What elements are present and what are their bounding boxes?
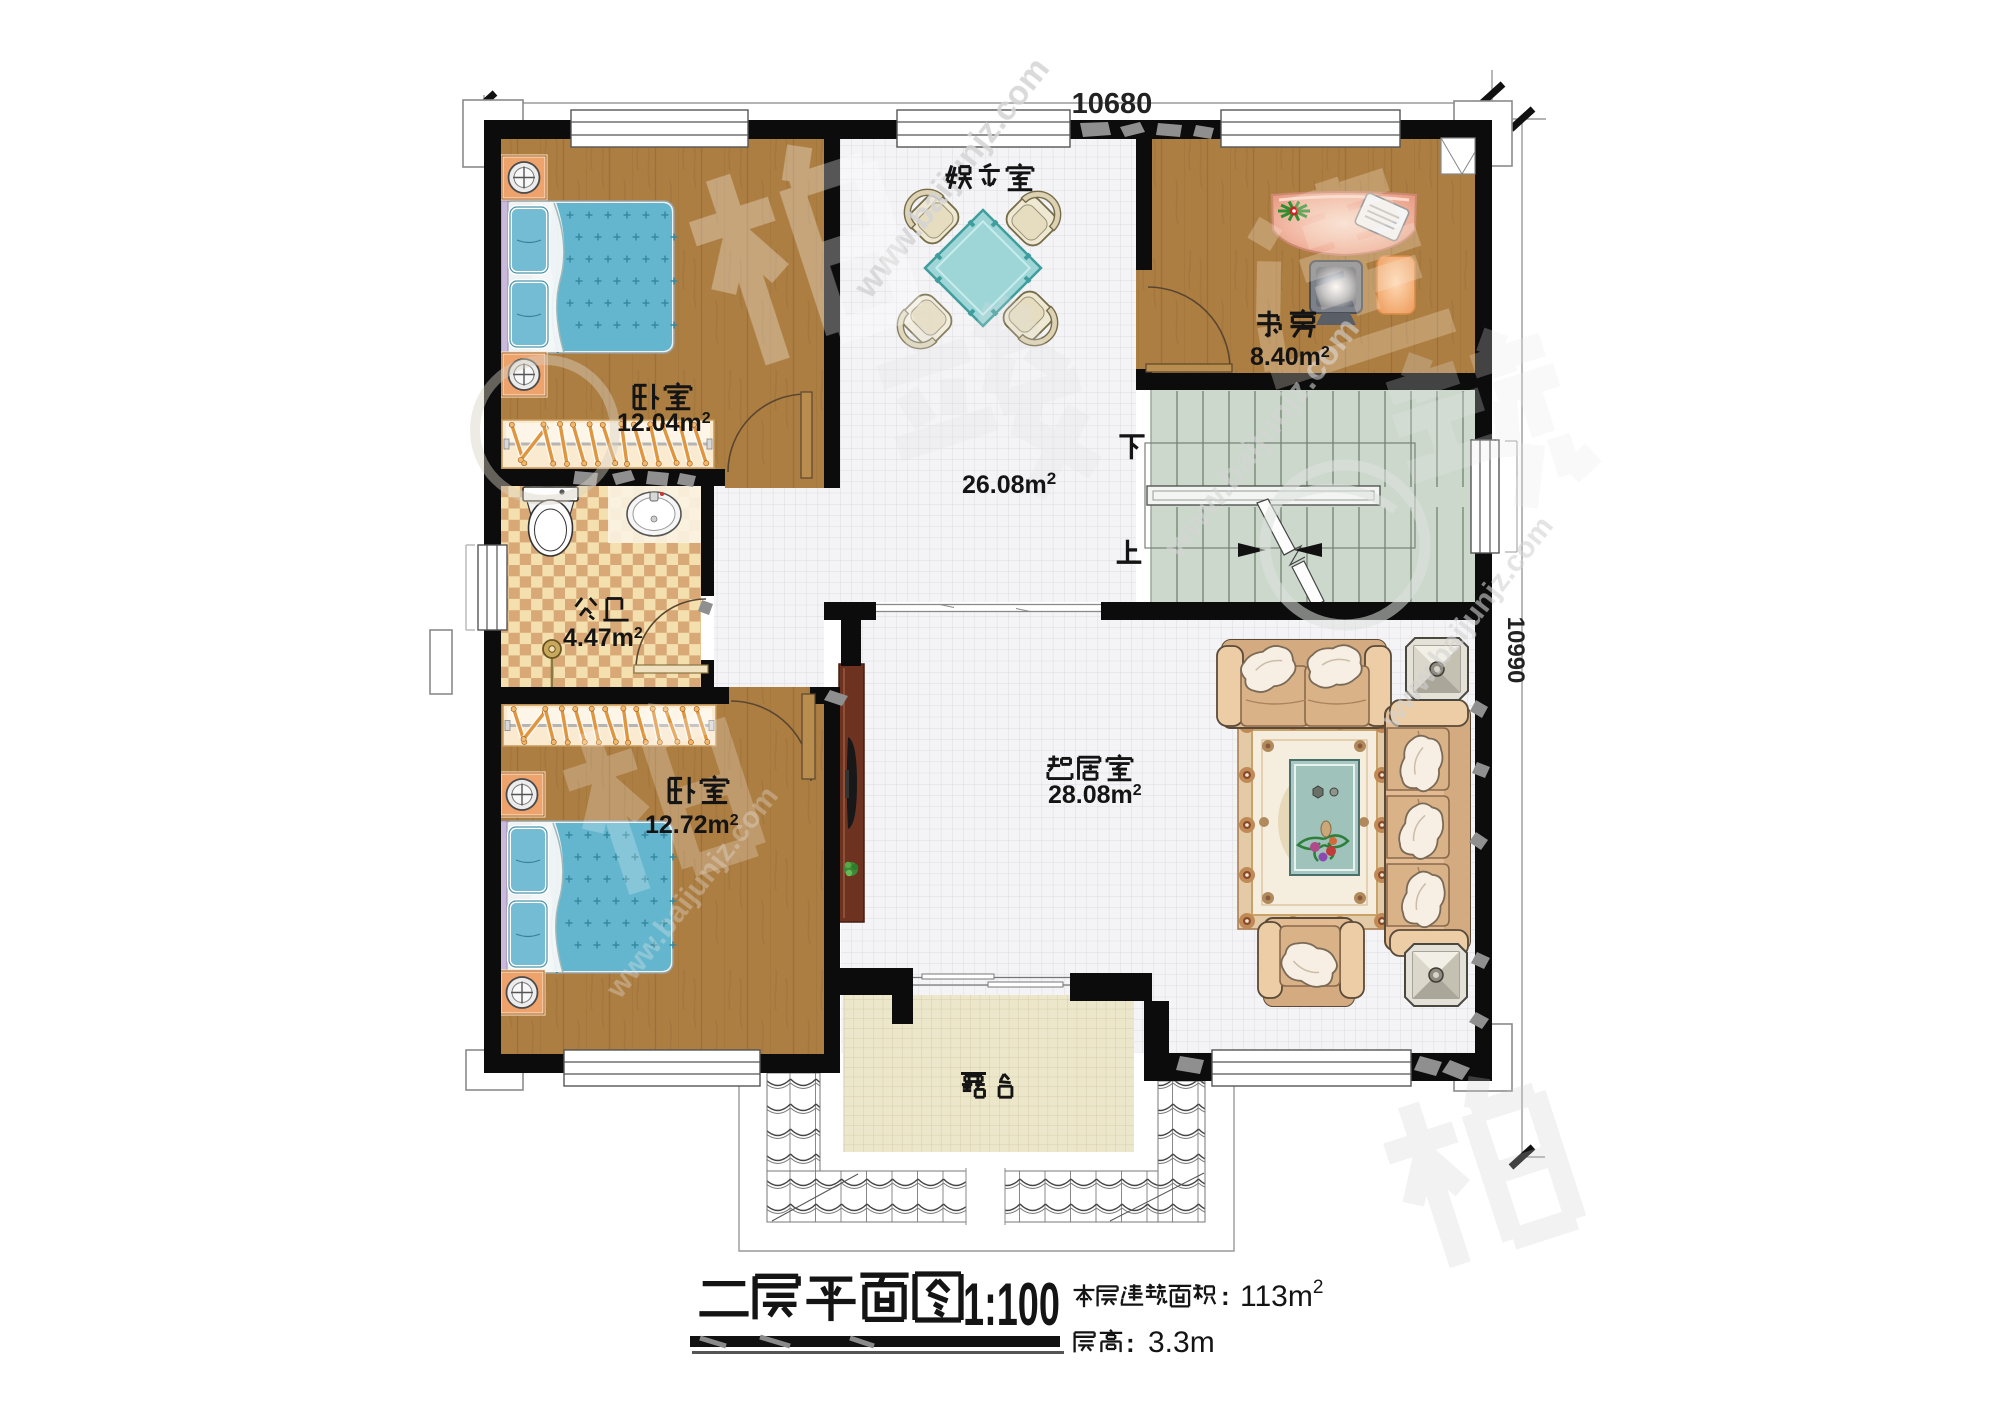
svg-text:10990: 10990 [1502, 617, 1529, 684]
svg-text::: : [1126, 1328, 1135, 1358]
svg-text:10680: 10680 [1072, 88, 1153, 120]
svg-text:12.04m2: 12.04m2 [617, 409, 711, 437]
svg-text::: : [1221, 1281, 1230, 1311]
svg-text:8.40m2: 8.40m2 [1250, 343, 1330, 371]
svg-text:26.08m2: 26.08m2 [962, 469, 1056, 499]
svg-text:28.08m2: 28.08m2 [1048, 781, 1142, 809]
svg-text:113m2: 113m2 [1240, 1277, 1323, 1313]
svg-text:1:100: 1:100 [963, 1271, 1060, 1338]
svg-text:4.47m2: 4.47m2 [563, 624, 643, 652]
svg-text:3.3m: 3.3m [1148, 1326, 1215, 1359]
svg-text:12.72m2: 12.72m2 [645, 811, 739, 839]
